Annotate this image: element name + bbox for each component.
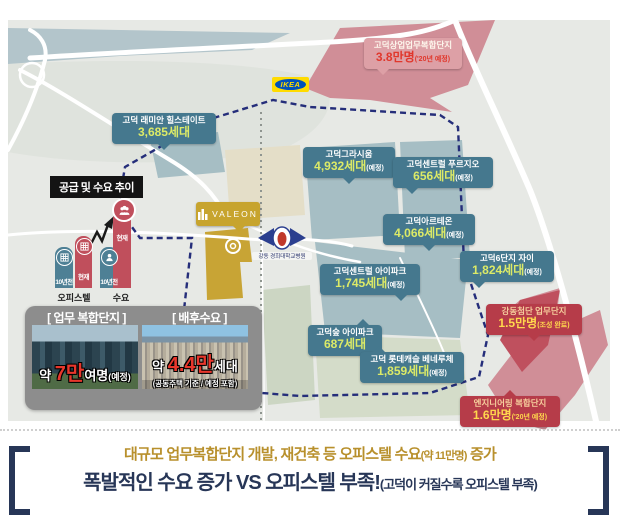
caption-business-complex: 약 7만여명(예정) bbox=[32, 357, 138, 386]
pointer-icon bbox=[157, 143, 171, 157]
caption-note: (공동주택 기준 / 예정 포함) bbox=[142, 378, 248, 389]
zone-label-engineering: 엔지니어링 복합단지 1.6만명('20년 예정) bbox=[460, 396, 560, 427]
people-icon bbox=[112, 198, 136, 222]
pointer-icon bbox=[342, 177, 356, 191]
left-bracket bbox=[9, 446, 30, 515]
valeon-towers-icon bbox=[198, 208, 208, 220]
chart-group-officetel: 오피스텔 bbox=[48, 291, 100, 304]
photo-hinterland-demand: 약 4.4만세대 (공동주택 기준 / 예정 포함) bbox=[142, 325, 248, 389]
zone-label-godeok-commercial: 고덕상업업무복합단지 3.8만명('20년 예정) bbox=[364, 38, 462, 69]
panel-left-title: [ 업무 복합단지 ] bbox=[30, 309, 143, 326]
bar-label-now: 현재 bbox=[75, 271, 92, 281]
pointer-icon bbox=[472, 281, 486, 295]
pointer-icon bbox=[372, 339, 386, 353]
chart-group-demand: 수요 bbox=[102, 291, 140, 304]
supply-demand-title: 공급 및 수요 추이 bbox=[50, 176, 143, 198]
building-icon bbox=[56, 249, 73, 266]
pointer-icon bbox=[232, 225, 246, 239]
valeon-label: VALEON bbox=[212, 209, 258, 219]
complex-label-arteon: 고덕아르테온 4,066세대(예정) bbox=[383, 214, 475, 245]
photo-business-complex: 약 7만여명(예정) bbox=[32, 325, 138, 389]
panel-right-title: [ 배후수요 ] bbox=[143, 309, 256, 326]
complex-label-grasium: 고덕그라시움 4,932세대(예정) bbox=[303, 147, 395, 178]
complex-label-central-ipark: 고덕센트럴 아이파크 1,745세대(예정) bbox=[320, 264, 420, 295]
complex-label-6danji-xi: 고덕6단지 자이 1,824세대(예정) bbox=[460, 251, 554, 282]
pointer-icon bbox=[527, 334, 541, 348]
ikea-logo: IKEA bbox=[272, 77, 309, 92]
complex-label-raemian-hillstate: 고덕 래미안 힐스테이트 3,685세대 bbox=[112, 113, 216, 144]
bar-label-past: 10년전 bbox=[100, 276, 118, 286]
complex-label-sup-ipark: 고덕숲 아이파크 687세대 bbox=[308, 325, 382, 356]
pointer-icon bbox=[422, 244, 436, 258]
hospital-label: 강동 경희대학교병원 bbox=[252, 252, 312, 260]
caption-hinterland-demand: 약 4.4만세대 bbox=[142, 348, 248, 377]
complex-label-central-prugio: 고덕센트럴 푸르지오 656세대(예정) bbox=[393, 157, 493, 188]
footer-message: 대규모 업무복합단지 개발, 재건축 등 오피스텔 수요(약 11만명) 증가 … bbox=[32, 443, 588, 495]
footer-line2: 폭발적인 수요 증가 VS 오피스텔 부족!(고덕이 커질수록 오피스텔 부족) bbox=[32, 466, 588, 495]
ikea-oval-icon: IKEA bbox=[275, 79, 306, 90]
bar-label-now: 현재 bbox=[113, 232, 131, 242]
footer-line1: 대규모 업무복합단지 개발, 재건축 등 오피스텔 수요(약 11만명) 증가 bbox=[32, 443, 588, 464]
bar-label-past: 10년전 bbox=[55, 276, 73, 286]
complex-label-lottecastle: 고덕 롯데캐슬 베네루체 1,859세대(예정) bbox=[360, 352, 464, 383]
pointer-icon bbox=[356, 312, 370, 326]
pointer-icon bbox=[394, 294, 408, 308]
pointer-icon bbox=[503, 383, 517, 397]
person-icon bbox=[101, 249, 118, 266]
zone-label-gangdong-hightech: 강동첨단 업무단지 1.5만명(조성 완료) bbox=[486, 304, 582, 335]
pointer-icon bbox=[405, 187, 419, 201]
valeon-sign: VALEON bbox=[196, 202, 260, 226]
right-bracket bbox=[588, 446, 609, 515]
pointer-icon bbox=[376, 68, 390, 82]
dotted-separator bbox=[0, 429, 620, 431]
building-icon bbox=[76, 238, 93, 255]
infographic-canvas: 고덕 래미안 힐스테이트 3,685세대 고덕그라시움 4,932세대(예정) … bbox=[0, 0, 620, 528]
photo-panel: [ 업무 복합단지 ] [ 배후수요 ] 약 7만여명(예정) 약 4.4만세대… bbox=[25, 306, 262, 410]
